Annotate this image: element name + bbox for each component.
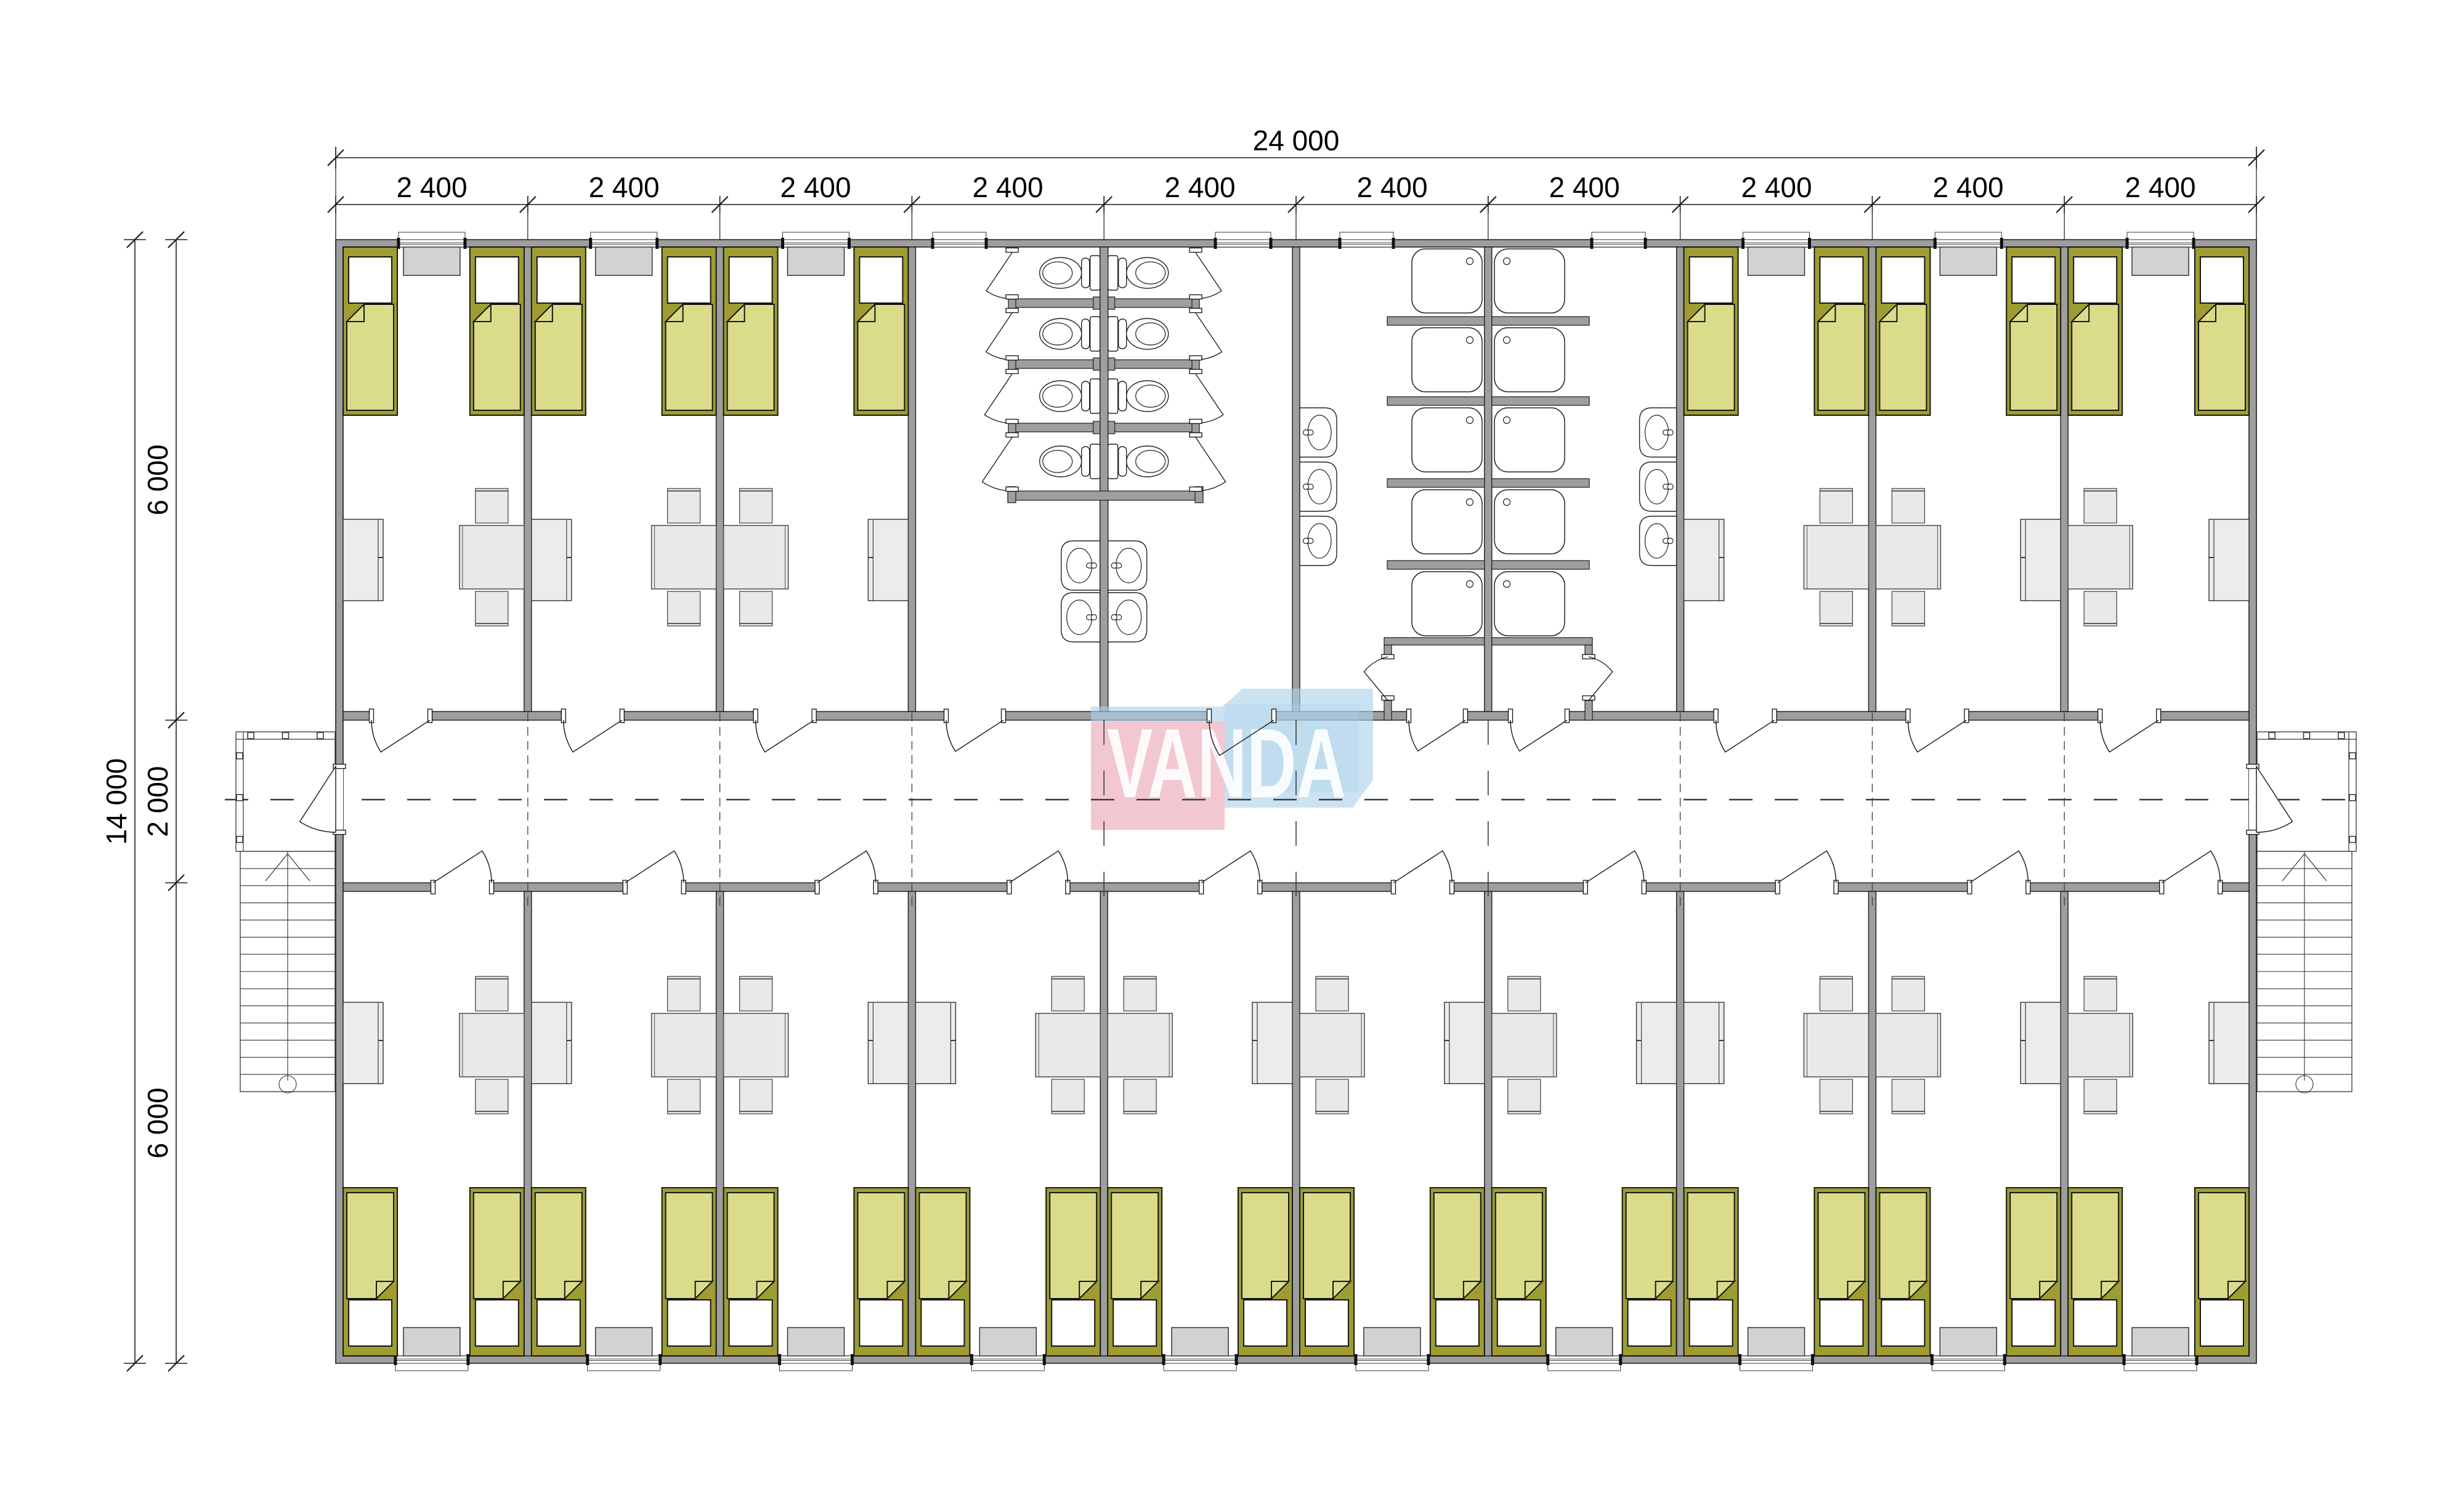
svg-text:6 000: 6 000 <box>142 1087 174 1158</box>
svg-text:2 000: 2 000 <box>142 766 174 837</box>
svg-text:2 400: 2 400 <box>780 171 851 203</box>
svg-text:2 400: 2 400 <box>1549 171 1619 203</box>
svg-text:6 000: 6 000 <box>142 444 174 515</box>
svg-text:2 400: 2 400 <box>1164 171 1235 203</box>
svg-text:2 400: 2 400 <box>1741 171 1812 203</box>
svg-text:2 400: 2 400 <box>396 171 467 203</box>
svg-text:2 400: 2 400 <box>2125 171 2195 203</box>
svg-text:2 400: 2 400 <box>1932 171 2003 203</box>
svg-text:VANDA: VANDA <box>1107 708 1346 818</box>
svg-text:2 400: 2 400 <box>588 171 659 203</box>
svg-text:2 400: 2 400 <box>972 171 1043 203</box>
svg-text:14 000: 14 000 <box>100 758 132 845</box>
svg-text:2 400: 2 400 <box>1356 171 1427 203</box>
svg-text:24 000: 24 000 <box>1253 124 1340 156</box>
